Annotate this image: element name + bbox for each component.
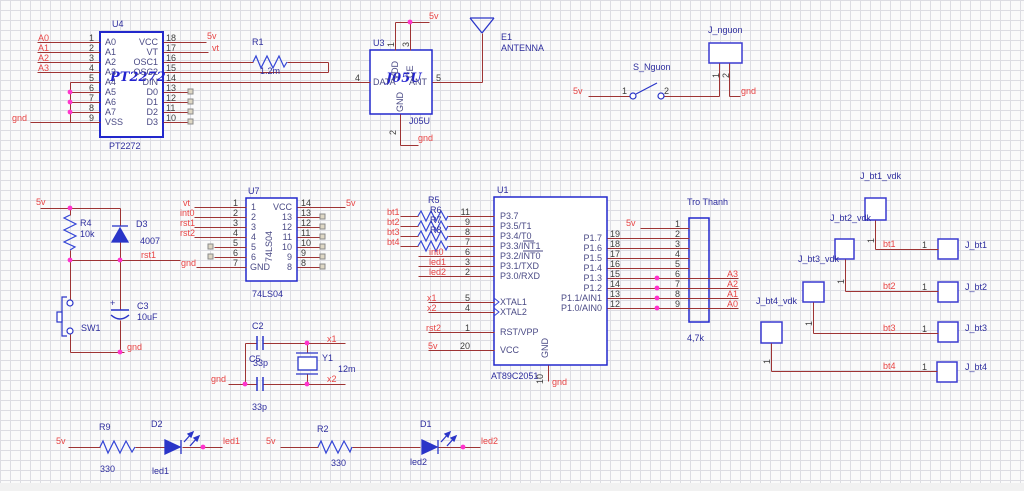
u1-num-14: 14 (610, 279, 620, 289)
u1-num-3: 3 (452, 257, 470, 267)
jbt3-designator: J_bt3 (965, 323, 987, 333)
u4-pin-a7: A7 (105, 107, 116, 117)
u7-pin-12: 12 (266, 222, 292, 232)
net-gnd-u7: gnd (181, 258, 196, 268)
u4-num-17: 17 (166, 43, 176, 53)
u1-num-15: 15 (610, 269, 620, 279)
u3-num-4: 4 (355, 73, 360, 83)
u4-pin-d2: D2 (116, 107, 158, 117)
u1-num-16: 16 (610, 259, 620, 269)
net-bt4: bt4 (883, 361, 896, 371)
u7-num-10: 10 (301, 238, 311, 248)
net-gnd-u4: gnd (12, 113, 27, 123)
u7-num-7: 7 (224, 258, 238, 268)
u4-pin-d3: D3 (116, 117, 158, 127)
u4-pin-a6: A6 (105, 97, 116, 107)
net-gnd-u3: gnd (418, 133, 433, 143)
rn-num-5: 5 (668, 259, 680, 269)
jbt2vdk-designator: J_bt2_vdk (830, 213, 871, 223)
c3-plus: + (110, 298, 115, 308)
net-led2-u1: led2 (429, 267, 446, 277)
u4-num-7: 7 (76, 93, 94, 103)
d3-designator: D3 (136, 219, 148, 229)
u1-num-18: 18 (610, 239, 620, 249)
d3-value: 4007 (140, 236, 160, 246)
u7-pin-8: 8 (266, 262, 292, 272)
u4-pin-vt: VT (116, 47, 158, 57)
u7-pin-5: 5 (251, 242, 256, 252)
net-bt3-u1: bt3 (387, 227, 400, 237)
u1-pin-p17: P1.7 (530, 233, 602, 243)
net-a1: A1 (38, 43, 49, 53)
r9-value: 330 (100, 464, 115, 474)
r4-value: 10k (80, 229, 95, 239)
u1-num-2: 2 (452, 267, 470, 277)
u1-pin-gnd: GND (540, 338, 550, 358)
jbt2-num-1: 1 (922, 282, 927, 292)
u3-pin-ce: CE (405, 65, 415, 78)
u7-pin-vcc: VCC (266, 202, 292, 212)
net-a0-rn: A0 (727, 299, 738, 309)
u1-num-19: 19 (610, 229, 620, 239)
u3-pin-gnd: GND (395, 92, 405, 112)
net-5v-u3: 5v (429, 11, 439, 21)
u7-num-8: 8 (301, 258, 306, 268)
u7-pin-11: 11 (266, 232, 292, 242)
jnguon-designator: J_nguon (708, 25, 743, 35)
schematic-canvas: U4PT2272PT2272A0A1A2A3gnd5vvtA0A1A2A3A4A… (0, 0, 1024, 491)
net-gnd-jnguon: gnd (741, 86, 756, 96)
u4-num-10: 10 (166, 113, 176, 123)
u1-pin-xtal1: XTAL1 (500, 297, 527, 307)
u1-pin-p12: P1.2 (530, 283, 602, 293)
u1-pin-p14: P1.4 (530, 263, 602, 273)
u4-pin-a2: A2 (105, 57, 116, 67)
u4-num-15: 15 (166, 63, 176, 73)
c5-value: 33p (252, 402, 267, 412)
u3-part-label: J05U (409, 116, 430, 126)
net-rst2-u7: rst2 (180, 228, 195, 238)
rn-num-3: 3 (668, 239, 680, 249)
u7-part-label: 74LS04 (252, 289, 283, 299)
u1-pin-xtal2: XTAL2 (500, 307, 527, 317)
u1-pin-p16: P1.6 (530, 243, 602, 253)
u4-num-14: 14 (166, 73, 176, 83)
r2-designator: R2 (317, 424, 329, 434)
net-5v-sw: 5v (573, 86, 583, 96)
sw1-designator: SW1 (81, 323, 101, 333)
u1-pin-p11: P1.1/AIN1 (530, 293, 602, 303)
u1-num-11: 11 (452, 207, 470, 217)
net-led1: led1 (223, 436, 240, 446)
u4-pin-din: DIN (116, 77, 158, 87)
net-bt4-u1: bt4 (387, 237, 400, 247)
net-a3: A3 (38, 63, 49, 73)
u7-pin-9: 9 (266, 252, 292, 262)
u7-num-6: 6 (224, 248, 238, 258)
rn-num-4: 4 (668, 249, 680, 259)
u4-num-12: 12 (166, 93, 176, 103)
u1-num-4: 4 (452, 303, 470, 313)
u1-num-20: 20 (452, 341, 470, 351)
u4-num-13: 13 (166, 83, 176, 93)
r8-designator: R8 (430, 225, 442, 235)
u7-num-14: 14 (301, 198, 311, 208)
jbt2vdk-num-1: 1 (836, 279, 846, 284)
rn-designator: Tro Thanh (687, 197, 728, 207)
e1-designator: E1 (501, 32, 512, 42)
jbt1vdk-designator: J_bt1_vdk (860, 171, 901, 181)
rn-num-1: 1 (668, 219, 680, 229)
r6-designator: R6 (430, 205, 442, 215)
e1-value: ANTENNA (501, 43, 544, 53)
u4-pin-osc2: OSC2 (116, 67, 158, 77)
u7-pin-1: 1 (251, 202, 256, 212)
d2-value: led1 (152, 466, 169, 476)
u4-num-8: 8 (76, 103, 94, 113)
u1-pin-p13: P1.3 (530, 273, 602, 283)
net-bt1-u1: bt1 (387, 207, 400, 217)
u4-num-3: 3 (76, 53, 94, 63)
net-bt3: bt3 (883, 323, 896, 333)
jbt4-designator: J_bt4 (965, 362, 987, 372)
c3-designator: C3 (137, 301, 149, 311)
net-a1-rn: A1 (727, 289, 738, 299)
net-x1-u1: x1 (427, 293, 437, 303)
u1-num-10: 10 (535, 374, 545, 384)
rn-value: 4,7k (687, 333, 704, 343)
u7-num-12: 12 (301, 218, 311, 228)
rn-num-7: 7 (668, 279, 680, 289)
u1-num-8: 8 (452, 227, 470, 237)
net-5v-led1: 5v (56, 436, 66, 446)
jbt3-num-1: 1 (922, 324, 927, 334)
u1-pin-p10: P1.0/AIN0 (530, 303, 602, 313)
u7-pin-3: 3 (251, 222, 256, 232)
snguon-num-2: 2 (664, 86, 669, 96)
r2-value: 330 (331, 458, 346, 468)
u4-num-4: 4 (76, 63, 94, 73)
net-vt-u4: vt (212, 43, 219, 53)
u4-num-16: 16 (166, 53, 176, 63)
u4-num-18: 18 (166, 33, 176, 43)
y1-value: 12m (338, 364, 356, 374)
u4-num-1: 1 (76, 33, 94, 43)
net-a2: A2 (38, 53, 49, 63)
u1-num-1: 1 (452, 323, 470, 333)
u7-num-4: 4 (224, 228, 238, 238)
u4-num-6: 6 (76, 83, 94, 93)
r1-designator: R1 (252, 37, 264, 47)
net-a2-rn: A2 (727, 279, 738, 289)
u1-pin-vcc: VCC (500, 345, 519, 355)
jbt4vdk-num-1: 1 (762, 359, 772, 364)
sheet-bottom-edge (0, 483, 1024, 491)
u1-num-5: 5 (452, 293, 470, 303)
net-gnd-u1: gnd (552, 377, 567, 387)
net-5v-u1: 5v (428, 341, 438, 351)
u4-part-label: PT2272 (109, 141, 141, 151)
net-5v-r4: 5v (36, 197, 46, 207)
jnguon-num-2: 2 (721, 73, 731, 78)
u1-num-7: 7 (452, 237, 470, 247)
u7-pin-10: 10 (266, 242, 292, 252)
y1-designator: Y1 (322, 353, 333, 363)
u1-pin-rst: RST/VPP (500, 327, 539, 337)
u1-num-9: 9 (452, 217, 470, 227)
jbt3vdk-designator: J_bt3_vdk (798, 254, 839, 264)
net-rst1-u7: rst1 (180, 218, 195, 228)
u7-designator: U7 (248, 186, 260, 196)
r9-designator: R9 (99, 422, 111, 432)
net-x2: x2 (327, 374, 337, 384)
u4-pin-vcc: VCC (116, 37, 158, 47)
u3-pin-vdd: VDD (390, 61, 400, 80)
rn-num-9: 9 (668, 299, 680, 309)
u3-num-1: 1 (386, 42, 396, 47)
u3-designator: U3 (373, 38, 385, 48)
u4-pin-d1: D1 (116, 97, 158, 107)
d1-designator: D1 (420, 419, 432, 429)
u4-pin-a0: A0 (105, 37, 116, 47)
d2-designator: D2 (151, 419, 163, 429)
c2-designator: C2 (252, 321, 264, 331)
u7-pin-2: 2 (251, 212, 256, 222)
net-int0-u1: int0 (429, 247, 444, 257)
net-bt1: bt1 (883, 239, 896, 249)
u1-num-17: 17 (610, 249, 620, 259)
u7-num-9: 9 (301, 248, 306, 258)
jnguon-num-1: 1 (711, 73, 721, 78)
jbt4vdk-designator: J_bt4_vdk (756, 296, 797, 306)
u7-num-1: 1 (224, 198, 238, 208)
r1-value: 1.2m (260, 66, 280, 76)
r5-designator: R5 (428, 195, 440, 205)
net-gnd-r4: gnd (127, 342, 142, 352)
net-vt-u7: vt (183, 198, 190, 208)
u7-num-3: 3 (224, 218, 238, 228)
u3-num-2: 2 (388, 130, 398, 135)
net-5v-u7: 5v (346, 198, 356, 208)
u3-num-5: 5 (436, 73, 441, 83)
u1-num-13: 13 (610, 289, 620, 299)
u1-part-label: AT89C2051 (491, 371, 538, 381)
u4-num-11: 11 (166, 103, 175, 113)
jbt1-num-1: 1 (922, 240, 927, 250)
u7-num-13: 13 (301, 208, 311, 218)
u7-pin-6: 6 (251, 252, 256, 262)
snguon-num-1: 1 (622, 86, 627, 96)
net-5v-u4: 5v (207, 31, 217, 41)
net-5v-rn: 5v (626, 218, 636, 228)
labels-layer: U4PT2272PT2272A0A1A2A3gnd5vvtA0A1A2A3A4A… (0, 0, 1024, 491)
u1-pin-p15: P1.5 (530, 253, 602, 263)
net-a3-rn: A3 (727, 269, 738, 279)
u7-num-5: 5 (224, 238, 238, 248)
u4-pin-a1: A1 (105, 47, 116, 57)
net-x2-u1: x2 (427, 303, 437, 313)
net-led1-u1: led1 (429, 257, 446, 267)
u4-num-5: 5 (76, 73, 94, 83)
u4-num-9: 9 (76, 113, 94, 123)
rn-num-8: 8 (668, 289, 680, 299)
jbt2-designator: J_bt2 (965, 282, 987, 292)
u7-num-11: 11 (301, 228, 310, 238)
u1-pin-p34: P3.4/T0 (500, 231, 532, 241)
c3-value: 10uF (137, 312, 158, 322)
u4-pin-d0: D0 (116, 87, 158, 97)
net-5v-led2: 5v (266, 436, 276, 446)
net-a0: A0 (38, 33, 49, 43)
u4-num-2: 2 (76, 43, 94, 53)
u3-num-3: 3 (401, 42, 411, 47)
d1-value: led2 (410, 457, 427, 467)
net-int0-u7: int0 (180, 208, 195, 218)
net-gnd-xtal: gnd (211, 374, 226, 384)
u4-pin-a4: A4 (105, 77, 116, 87)
u4-designator: U4 (112, 19, 124, 29)
jbt1vdk-num-1: 1 (866, 238, 876, 243)
net-bt2: bt2 (883, 281, 896, 291)
u1-num-6: 6 (452, 247, 470, 257)
u4-pin-a5: A5 (105, 87, 116, 97)
net-x1: x1 (327, 334, 337, 344)
u3-pin-ant: ANT (409, 77, 427, 87)
c2-value: 33p (253, 358, 268, 368)
net-bt2-u1: bt2 (387, 217, 400, 227)
u7-pin-4: 4 (251, 232, 256, 242)
r7-designator: R7 (430, 215, 442, 225)
rn-num-6: 6 (668, 269, 680, 279)
jbt1-designator: J_bt1 (965, 240, 987, 250)
rn-num-2: 2 (668, 229, 680, 239)
jbt4-num-1: 1 (922, 362, 927, 372)
u1-pin-p37: P3.7 (500, 211, 519, 221)
u1-pin-p35: P3.5/T1 (500, 221, 532, 231)
u4-pin-osc1: OSC1 (116, 57, 158, 67)
u4-pin-a3: A3 (105, 67, 116, 77)
u1-designator: U1 (497, 185, 509, 195)
net-rst1: rst1 (141, 250, 156, 260)
u7-num-2: 2 (224, 208, 238, 218)
net-led2: led2 (481, 436, 498, 446)
net-rst2-u1: rst2 (426, 323, 441, 333)
r4-designator: R4 (80, 218, 92, 228)
u1-num-12: 12 (610, 299, 620, 309)
snguon-designator: S_Nguon (633, 62, 671, 72)
jbt3vdk-num-1: 1 (804, 321, 814, 326)
u7-pin-13: 13 (266, 212, 292, 222)
